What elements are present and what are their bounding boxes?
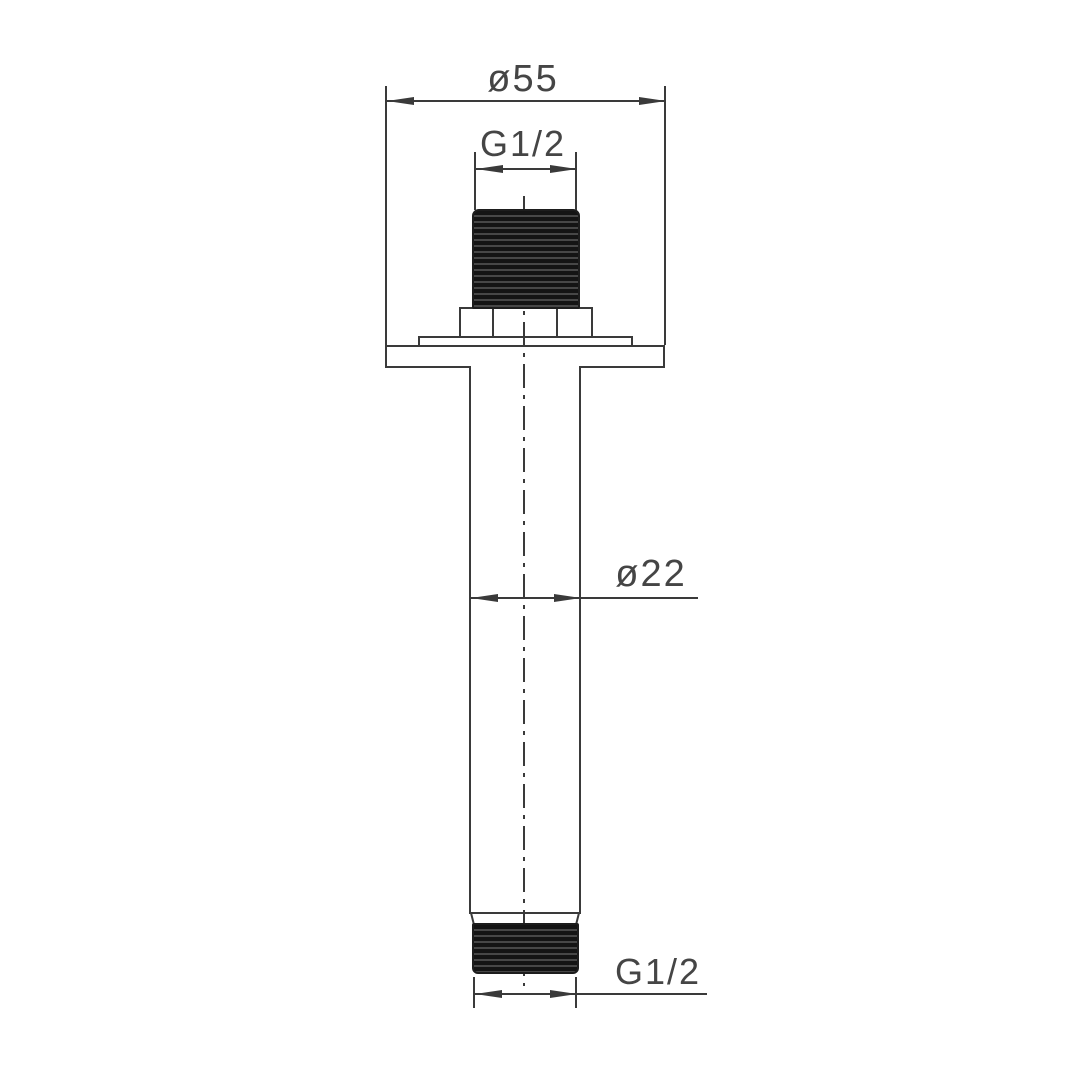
pipe-diameter-label: ø22 (596, 555, 706, 593)
dimension-line (475, 993, 707, 995)
dimension-line (471, 597, 698, 599)
top-thread-body (472, 209, 580, 309)
extension-line (385, 86, 387, 345)
dimension-arrow-right (550, 990, 577, 998)
drawing-canvas: ø55 G1/2 ø22 G1/2 (0, 0, 1080, 1080)
flange-plate-main (385, 345, 665, 368)
hex-nut-facet-line (492, 309, 494, 337)
dimension-arrow-right (554, 594, 581, 602)
top-thread-label: G1/2 (423, 126, 623, 162)
pipe-body (469, 366, 581, 914)
hex-nut-facet-line (556, 309, 558, 337)
dimension-arrow-left (475, 990, 502, 998)
dimension-arrow-left (387, 97, 414, 105)
dimension-arrow-left (476, 165, 503, 173)
extension-line (664, 86, 666, 345)
dimension-line (387, 100, 666, 102)
flange-diameter-label: ø55 (423, 60, 623, 98)
centerline (523, 196, 525, 986)
bottom-thread-body (472, 923, 579, 974)
hex-nut (459, 307, 593, 339)
dimension-arrow-left (471, 594, 498, 602)
bottom-thread-label: G1/2 (603, 954, 713, 990)
dimension-arrow-right (550, 165, 577, 173)
dimension-arrow-right (639, 97, 666, 105)
